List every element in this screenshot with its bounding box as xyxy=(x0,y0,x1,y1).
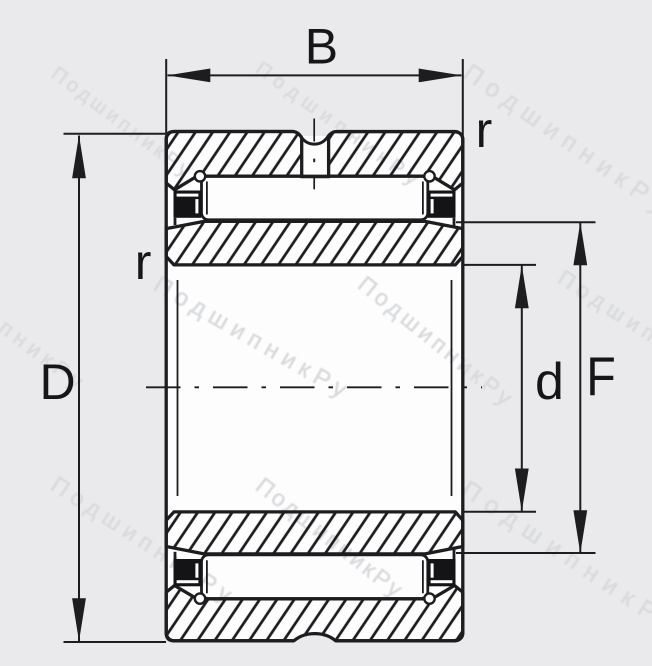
svg-text:ПодшипникРу: ПодшипникРу xyxy=(457,476,652,639)
svg-text:B: B xyxy=(305,19,338,75)
svg-text:r: r xyxy=(476,102,493,158)
svg-text:d: d xyxy=(535,353,564,411)
svg-text:r: r xyxy=(135,234,152,290)
svg-text:F: F xyxy=(586,345,616,407)
svg-text:D: D xyxy=(40,354,76,410)
